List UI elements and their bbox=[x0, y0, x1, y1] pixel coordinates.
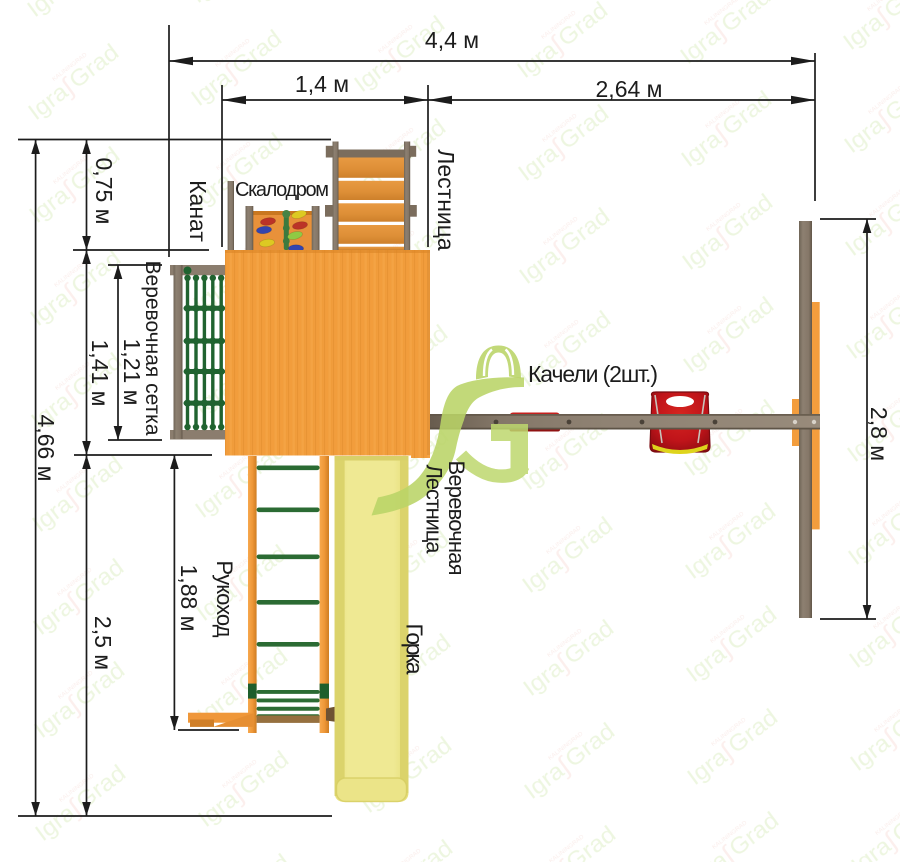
svg-text:4,4 м: 4,4 м bbox=[425, 27, 479, 53]
svg-text:Горка: Горка bbox=[402, 624, 428, 675]
svg-text:1,41 м: 1,41 м bbox=[87, 340, 113, 407]
svg-text:1,88 м: 1,88 м bbox=[176, 565, 202, 632]
svg-text:Рукоход: Рукоход bbox=[212, 561, 237, 638]
svg-text:2,64 м: 2,64 м bbox=[596, 76, 663, 102]
svg-text:0,75 м: 0,75 м bbox=[91, 158, 117, 225]
svg-text:Лестница: Лестница bbox=[422, 465, 447, 555]
svg-text:Веревочная сетка: Веревочная сетка bbox=[141, 261, 164, 436]
svg-text:Лестница: Лестница bbox=[433, 149, 459, 251]
svg-text:2,8 м: 2,8 м bbox=[866, 407, 892, 461]
svg-text:1,4 м: 1,4 м bbox=[295, 71, 349, 97]
svg-text:2,5 м: 2,5 м bbox=[90, 616, 116, 670]
svg-text:Канат: Канат bbox=[185, 180, 211, 242]
svg-text:Качели (2шт.): Качели (2шт.) bbox=[528, 361, 658, 387]
svg-text:Веревочная: Веревочная bbox=[444, 461, 469, 576]
svg-text:4,66 м: 4,66 м bbox=[33, 415, 59, 482]
svg-text:Скалодром: Скалодром bbox=[235, 179, 329, 201]
